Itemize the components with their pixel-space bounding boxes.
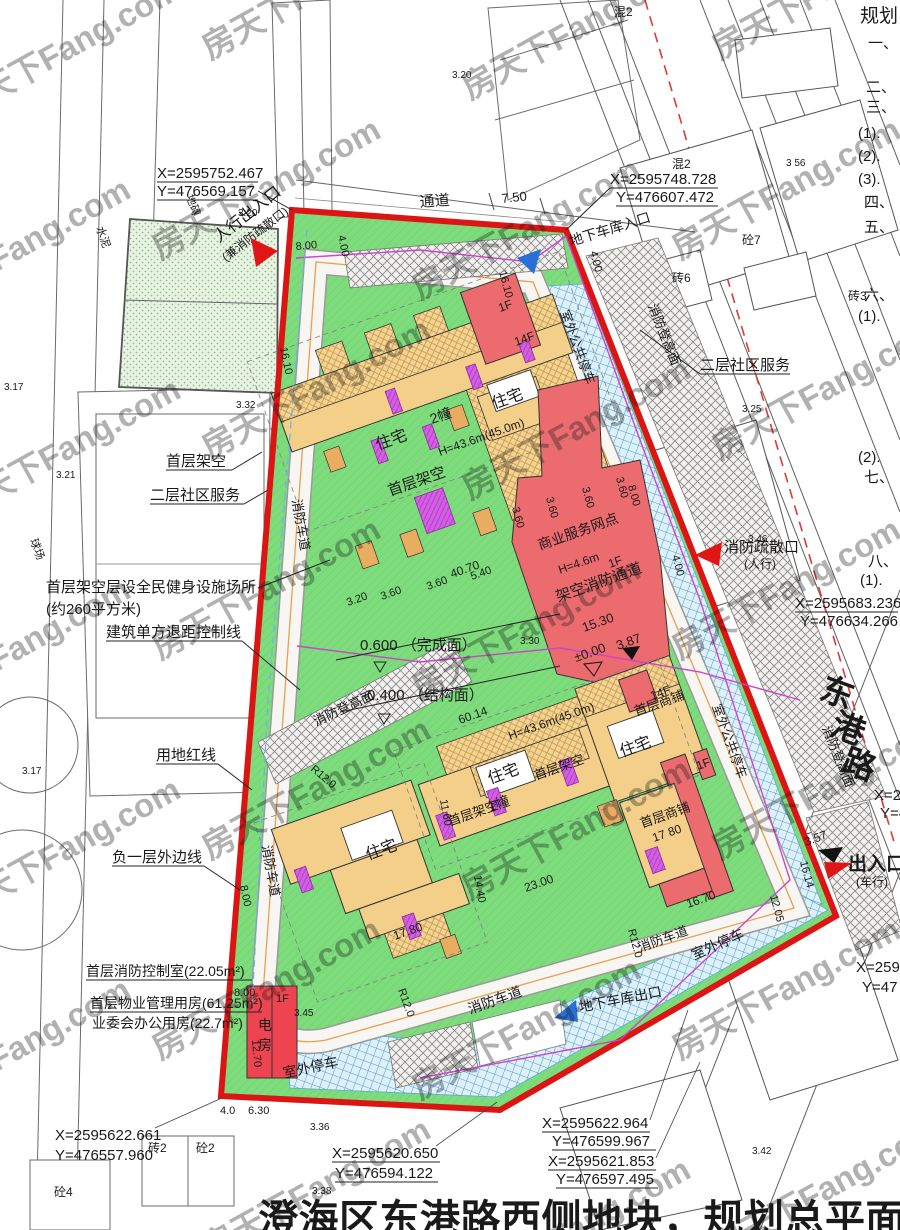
svg-text:Y=476599.967: Y=476599.967 (552, 1133, 650, 1150)
svg-text:砼7: 砼7 (742, 233, 761, 247)
svg-text:(3).: (3). (858, 171, 881, 188)
svg-text:四、: 四、 (864, 194, 894, 211)
svg-text:用地红线: 用地红线 (156, 747, 216, 764)
svg-text:通道: 通道 (419, 192, 450, 211)
svg-text:砼2: 砼2 (196, 1141, 215, 1155)
svg-text:3.17: 3.17 (22, 766, 42, 777)
svg-text:3.17: 3.17 (4, 382, 24, 393)
svg-text:五、: 五、 (864, 219, 894, 236)
svg-text:一、: 一、 (868, 35, 898, 52)
svg-text:X=2595622.661: X=2595622.661 (55, 1127, 161, 1144)
svg-text:X=2595621.853: X=2595621.853 (548, 1153, 654, 1170)
svg-text:X=2595622.964: X=2595622.964 (542, 1115, 648, 1132)
svg-text:6.30: 6.30 (248, 1105, 269, 1117)
svg-text:(1).: (1). (858, 308, 881, 325)
svg-text:二层社区服务: 二层社区服务 (150, 487, 240, 504)
svg-text:X=2595683.236: X=2595683.236 (795, 595, 900, 612)
svg-text:(人行): (人行) (744, 557, 776, 571)
svg-text:(车行): (车行) (856, 874, 888, 889)
svg-text:砖2: 砖2 (148, 1140, 167, 1155)
svg-text:七、: 七、 (864, 469, 894, 486)
svg-text:(2).: (2). (858, 449, 881, 466)
svg-text:规划: 规划 (860, 5, 898, 27)
svg-text:12.70: 12.70 (249, 1039, 263, 1067)
svg-text:3.42: 3.42 (752, 1146, 772, 1157)
svg-text:8.00: 8.00 (295, 239, 317, 253)
svg-text:负一层外边线: 负一层外边线 (112, 849, 202, 866)
svg-text:出入口: 出入口 (848, 852, 900, 875)
svg-text:砖3: 砖3 (848, 288, 867, 303)
svg-text:混2: 混2 (672, 157, 691, 171)
svg-text:二、: 二、 (866, 79, 896, 96)
svg-text:7.50: 7.50 (501, 188, 528, 206)
svg-text:3.46: 3.46 (748, 534, 768, 545)
svg-text:Y=476634.266: Y=476634.266 (800, 613, 898, 630)
svg-text:砼4: 砼4 (54, 1185, 73, 1199)
svg-text:Y=476557.960: Y=476557.960 (55, 1147, 153, 1164)
svg-text:3.36: 3.36 (310, 1122, 330, 1133)
svg-text:电: 电 (258, 1017, 272, 1033)
svg-text:二层社区服务: 二层社区服务 (700, 357, 790, 374)
svg-text:3.45: 3.45 (294, 1008, 314, 1019)
svg-text:Y=476607.472: Y=476607.472 (616, 189, 714, 206)
svg-text:六、: 六、 (864, 287, 894, 304)
svg-text:(1).: (1). (860, 572, 883, 589)
svg-text:砖6: 砖6 (672, 270, 691, 285)
svg-text:4.0: 4.0 (220, 1105, 235, 1117)
svg-text:Y=47: Y=47 (862, 979, 897, 996)
svg-text:X=25: X=25 (874, 787, 900, 804)
svg-text:Y=4: Y=4 (880, 805, 900, 822)
